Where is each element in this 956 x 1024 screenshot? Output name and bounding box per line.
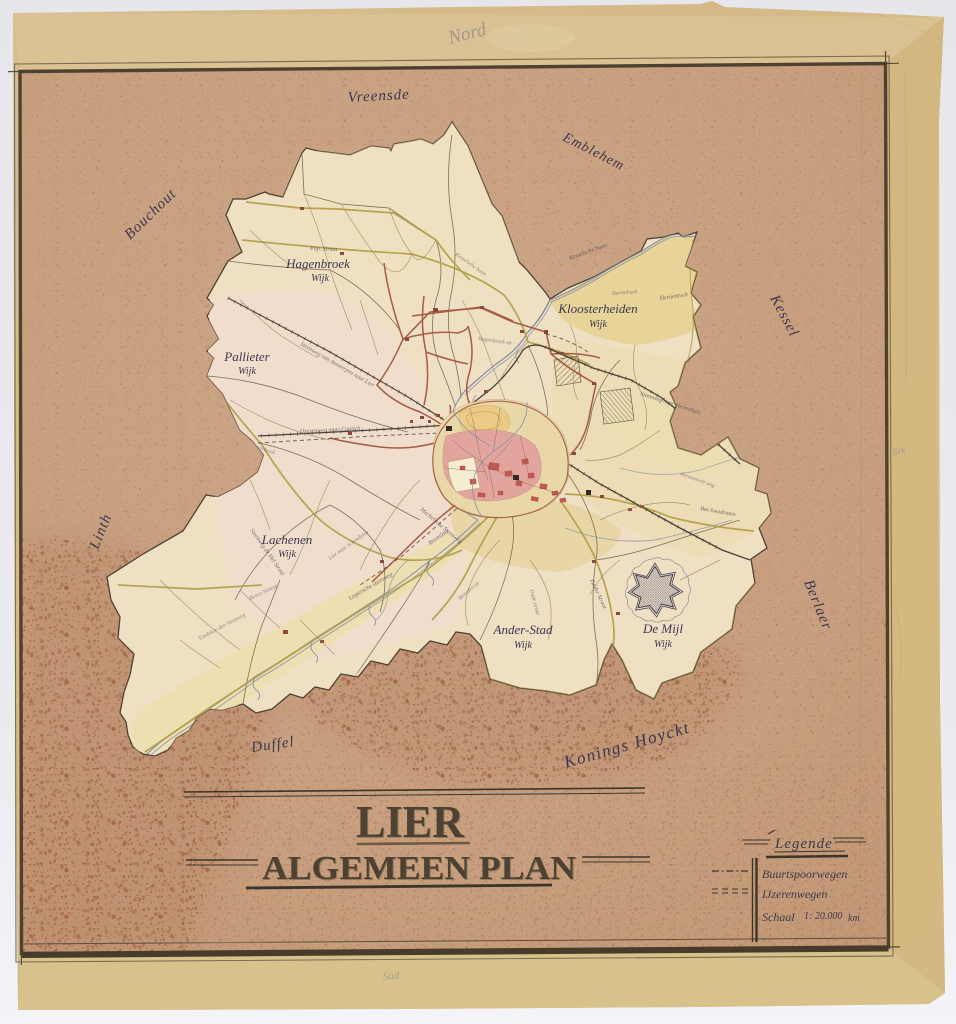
svg-text:1: 20.000: 1: 20.000 <box>804 911 842 922</box>
svg-text:Ander-Stad: Ander-Stad <box>493 622 553 637</box>
svg-text:Buurtspoorwegen: Buurtspoorwegen <box>762 867 847 881</box>
svg-text:Legende: Legende <box>774 836 833 852</box>
svg-text:Wijk: Wijk <box>654 639 672 650</box>
svg-text:Kloosterheiden: Kloosterheiden <box>557 301 637 316</box>
svg-text:ALGEMEEN PLAN: ALGEMEEN PLAN <box>262 850 576 887</box>
svg-text:Wijk: Wijk <box>238 366 256 377</box>
svg-text:Wijk: Wijk <box>589 319 607 330</box>
svg-text:LIER: LIER <box>356 797 464 847</box>
svg-text:Pallieter: Pallieter <box>223 349 270 364</box>
svg-text:De Mijl: De Mijl <box>642 621 683 636</box>
svg-text:Lachenen: Lachenen <box>261 532 313 547</box>
svg-text:Sud: Sud <box>382 970 400 983</box>
svg-text:IJzerenwegen: IJzerenwegen <box>761 887 828 901</box>
svg-text:Wijk: Wijk <box>514 640 532 651</box>
svg-text:Schaal: Schaal <box>762 910 795 924</box>
svg-text:Wijk: Wijk <box>278 549 296 560</box>
svg-text:Wijk: Wijk <box>311 273 329 284</box>
svg-text:Hagenbroek: Hagenbroek <box>285 256 350 271</box>
svg-text:Pop. Straat: Pop. Straat <box>309 246 338 253</box>
svg-text:Vreensde: Vreensde <box>347 87 410 106</box>
svg-text:km: km <box>848 913 860 924</box>
